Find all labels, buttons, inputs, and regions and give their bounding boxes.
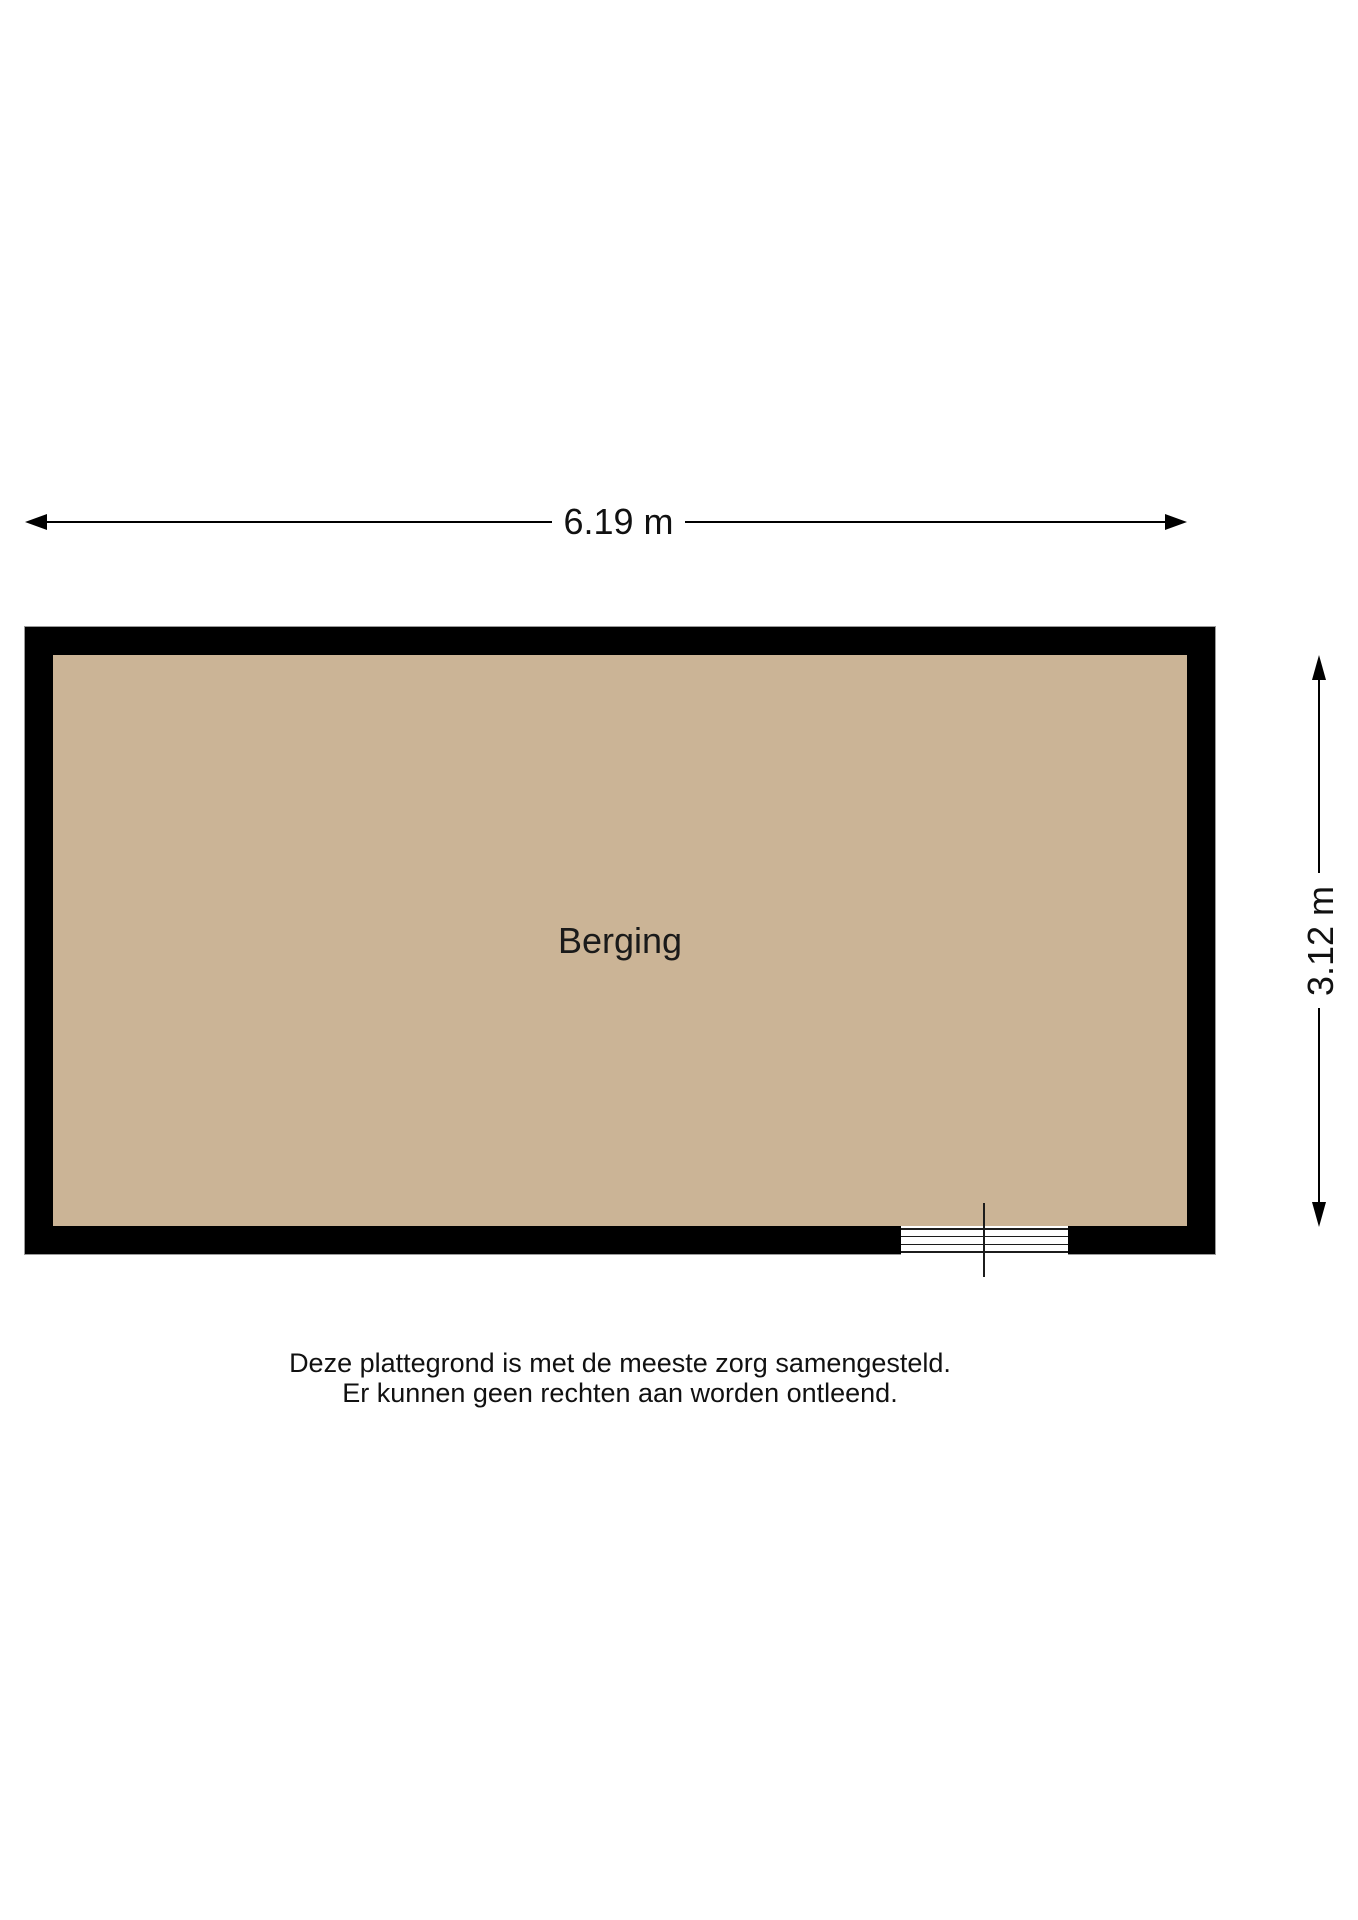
dimension-arrow-down-icon xyxy=(1312,1202,1326,1227)
door-leaf-line xyxy=(983,1203,985,1277)
width-dimension-segment-left xyxy=(44,521,552,523)
width-dimension-segment-right xyxy=(685,521,1166,523)
room-walls: Berging xyxy=(25,627,1215,1254)
disclaimer-line-2: Er kunnen geen rechten aan worden ontlee… xyxy=(25,1378,1215,1408)
width-dimension-label: 6.19 m xyxy=(552,504,685,540)
height-dimension-segment-bottom xyxy=(1318,1008,1320,1204)
dimension-arrow-up-icon xyxy=(1312,655,1326,680)
disclaimer-line-1: Deze plattegrond is met de meeste zorg s… xyxy=(25,1348,1215,1378)
room-floor: Berging xyxy=(53,655,1187,1226)
height-dimension-segment-top xyxy=(1318,678,1320,873)
disclaimer: Deze plattegrond is met de meeste zorg s… xyxy=(25,1348,1215,1408)
floorplan-canvas: { "floorplan": { "room": { "label": "Ber… xyxy=(0,0,1358,1920)
height-dimension-label: 3.12 m xyxy=(1300,886,1342,996)
room-label: Berging xyxy=(558,920,682,962)
dimension-arrow-right-icon xyxy=(1165,514,1187,530)
